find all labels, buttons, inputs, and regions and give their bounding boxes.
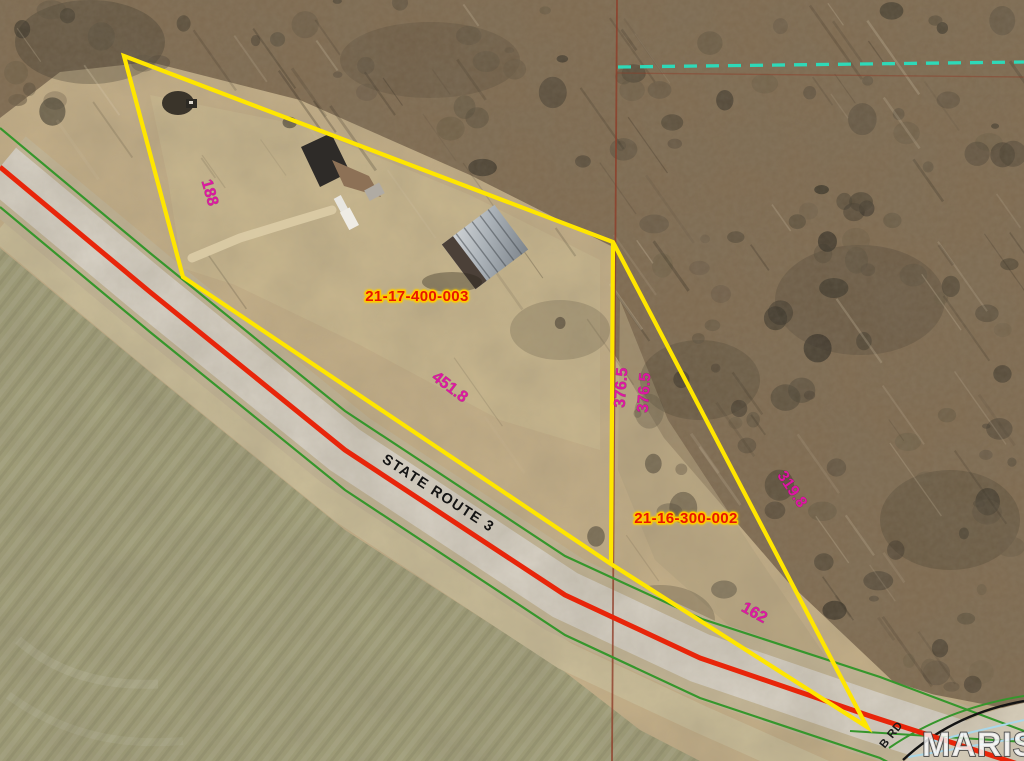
dimension-label-divider-east: 376.5 [635,372,655,413]
parcel-id-label-west: 21-17-400-003 [365,288,469,305]
old-structure-roof-speck [189,101,193,104]
aerial-parcel-map: 188 451.8 376.5 376.5 319.8 162 21-17-40… [0,0,1024,761]
parcel-id-label-east: 21-16-300-002 [634,510,738,527]
dimension-label-divider-west: 376.5 [612,367,632,408]
terrain-grain-noise [0,0,1024,761]
maris-watermark: MARIS [922,726,1024,761]
